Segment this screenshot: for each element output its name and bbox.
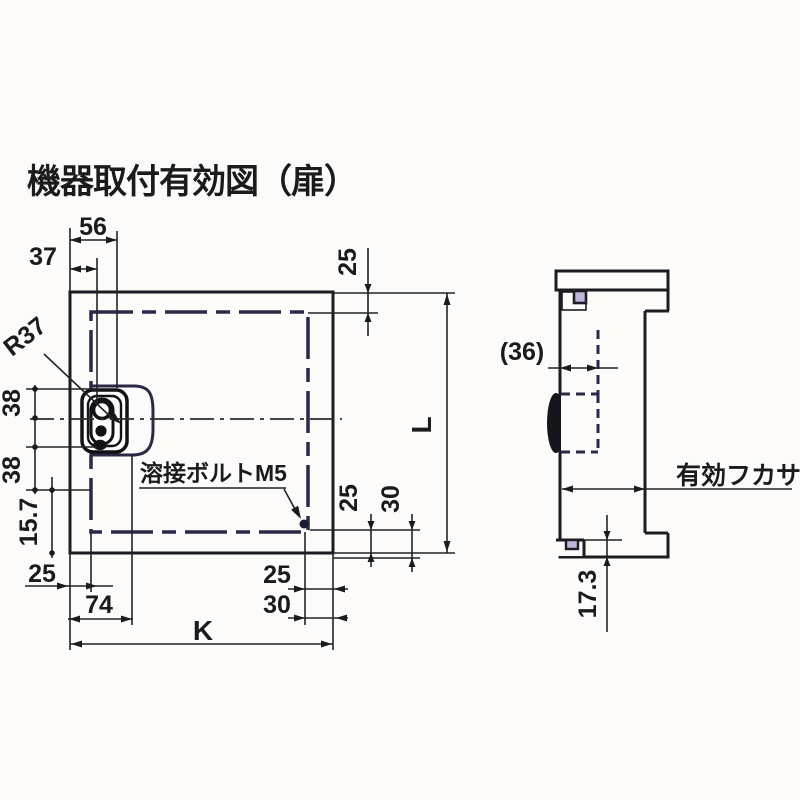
- dim-30-right-label: 30: [377, 485, 405, 513]
- effective-depth-label: 有効フカサ: [676, 461, 800, 490]
- dim-25-bottom-right-label: 25: [263, 561, 291, 589]
- weld-bolt-label: 溶接ボルトM5: [140, 460, 287, 486]
- keyhole-pin: [95, 425, 106, 436]
- catalog-diagram-page: 機器取付有効図（扉）: [0, 0, 800, 800]
- weld-bolt-leader: [284, 489, 296, 511]
- dim-25-right-label: 25: [335, 484, 363, 512]
- dim-l-label: L: [406, 416, 437, 433]
- weld-bolt: [300, 520, 309, 529]
- front-view: 56 37 25 R37 38 38 15.7 25 溶接ボルトM5 25 30…: [0, 213, 455, 650]
- dim-25-top-label: 25: [334, 248, 362, 276]
- dim-25-left-label: 25: [28, 560, 56, 588]
- dim-17-3-label: 17.3: [574, 570, 602, 619]
- side-top-cap: [556, 271, 668, 290]
- technical-drawing: 機器取付有効図（扉）: [0, 0, 800, 800]
- page-title: 機器取付有効図（扉）: [27, 162, 357, 201]
- side-bottom-tab: [566, 540, 578, 549]
- side-channel: [646, 311, 674, 533]
- dim-56-label: 56: [79, 213, 107, 241]
- dim-15-7-label: 15.7: [15, 498, 43, 547]
- dim-30-bottom-right-label: 30: [263, 591, 291, 619]
- dim-37-label: 37: [29, 243, 57, 271]
- lock-detail: [82, 390, 127, 452]
- side-hook: [574, 291, 586, 303]
- dim-36-label: (36): [500, 338, 544, 366]
- keyhole-base: [93, 440, 107, 450]
- dim-38b-label: 38: [0, 456, 26, 484]
- side-view: (36) 有効フカサ 17.3: [500, 271, 800, 632]
- dim-38a-label: 38: [0, 389, 26, 417]
- side-handle-cavity: [561, 394, 598, 452]
- dim-k-label: K: [193, 615, 213, 646]
- dim-74-label: 74: [85, 591, 113, 619]
